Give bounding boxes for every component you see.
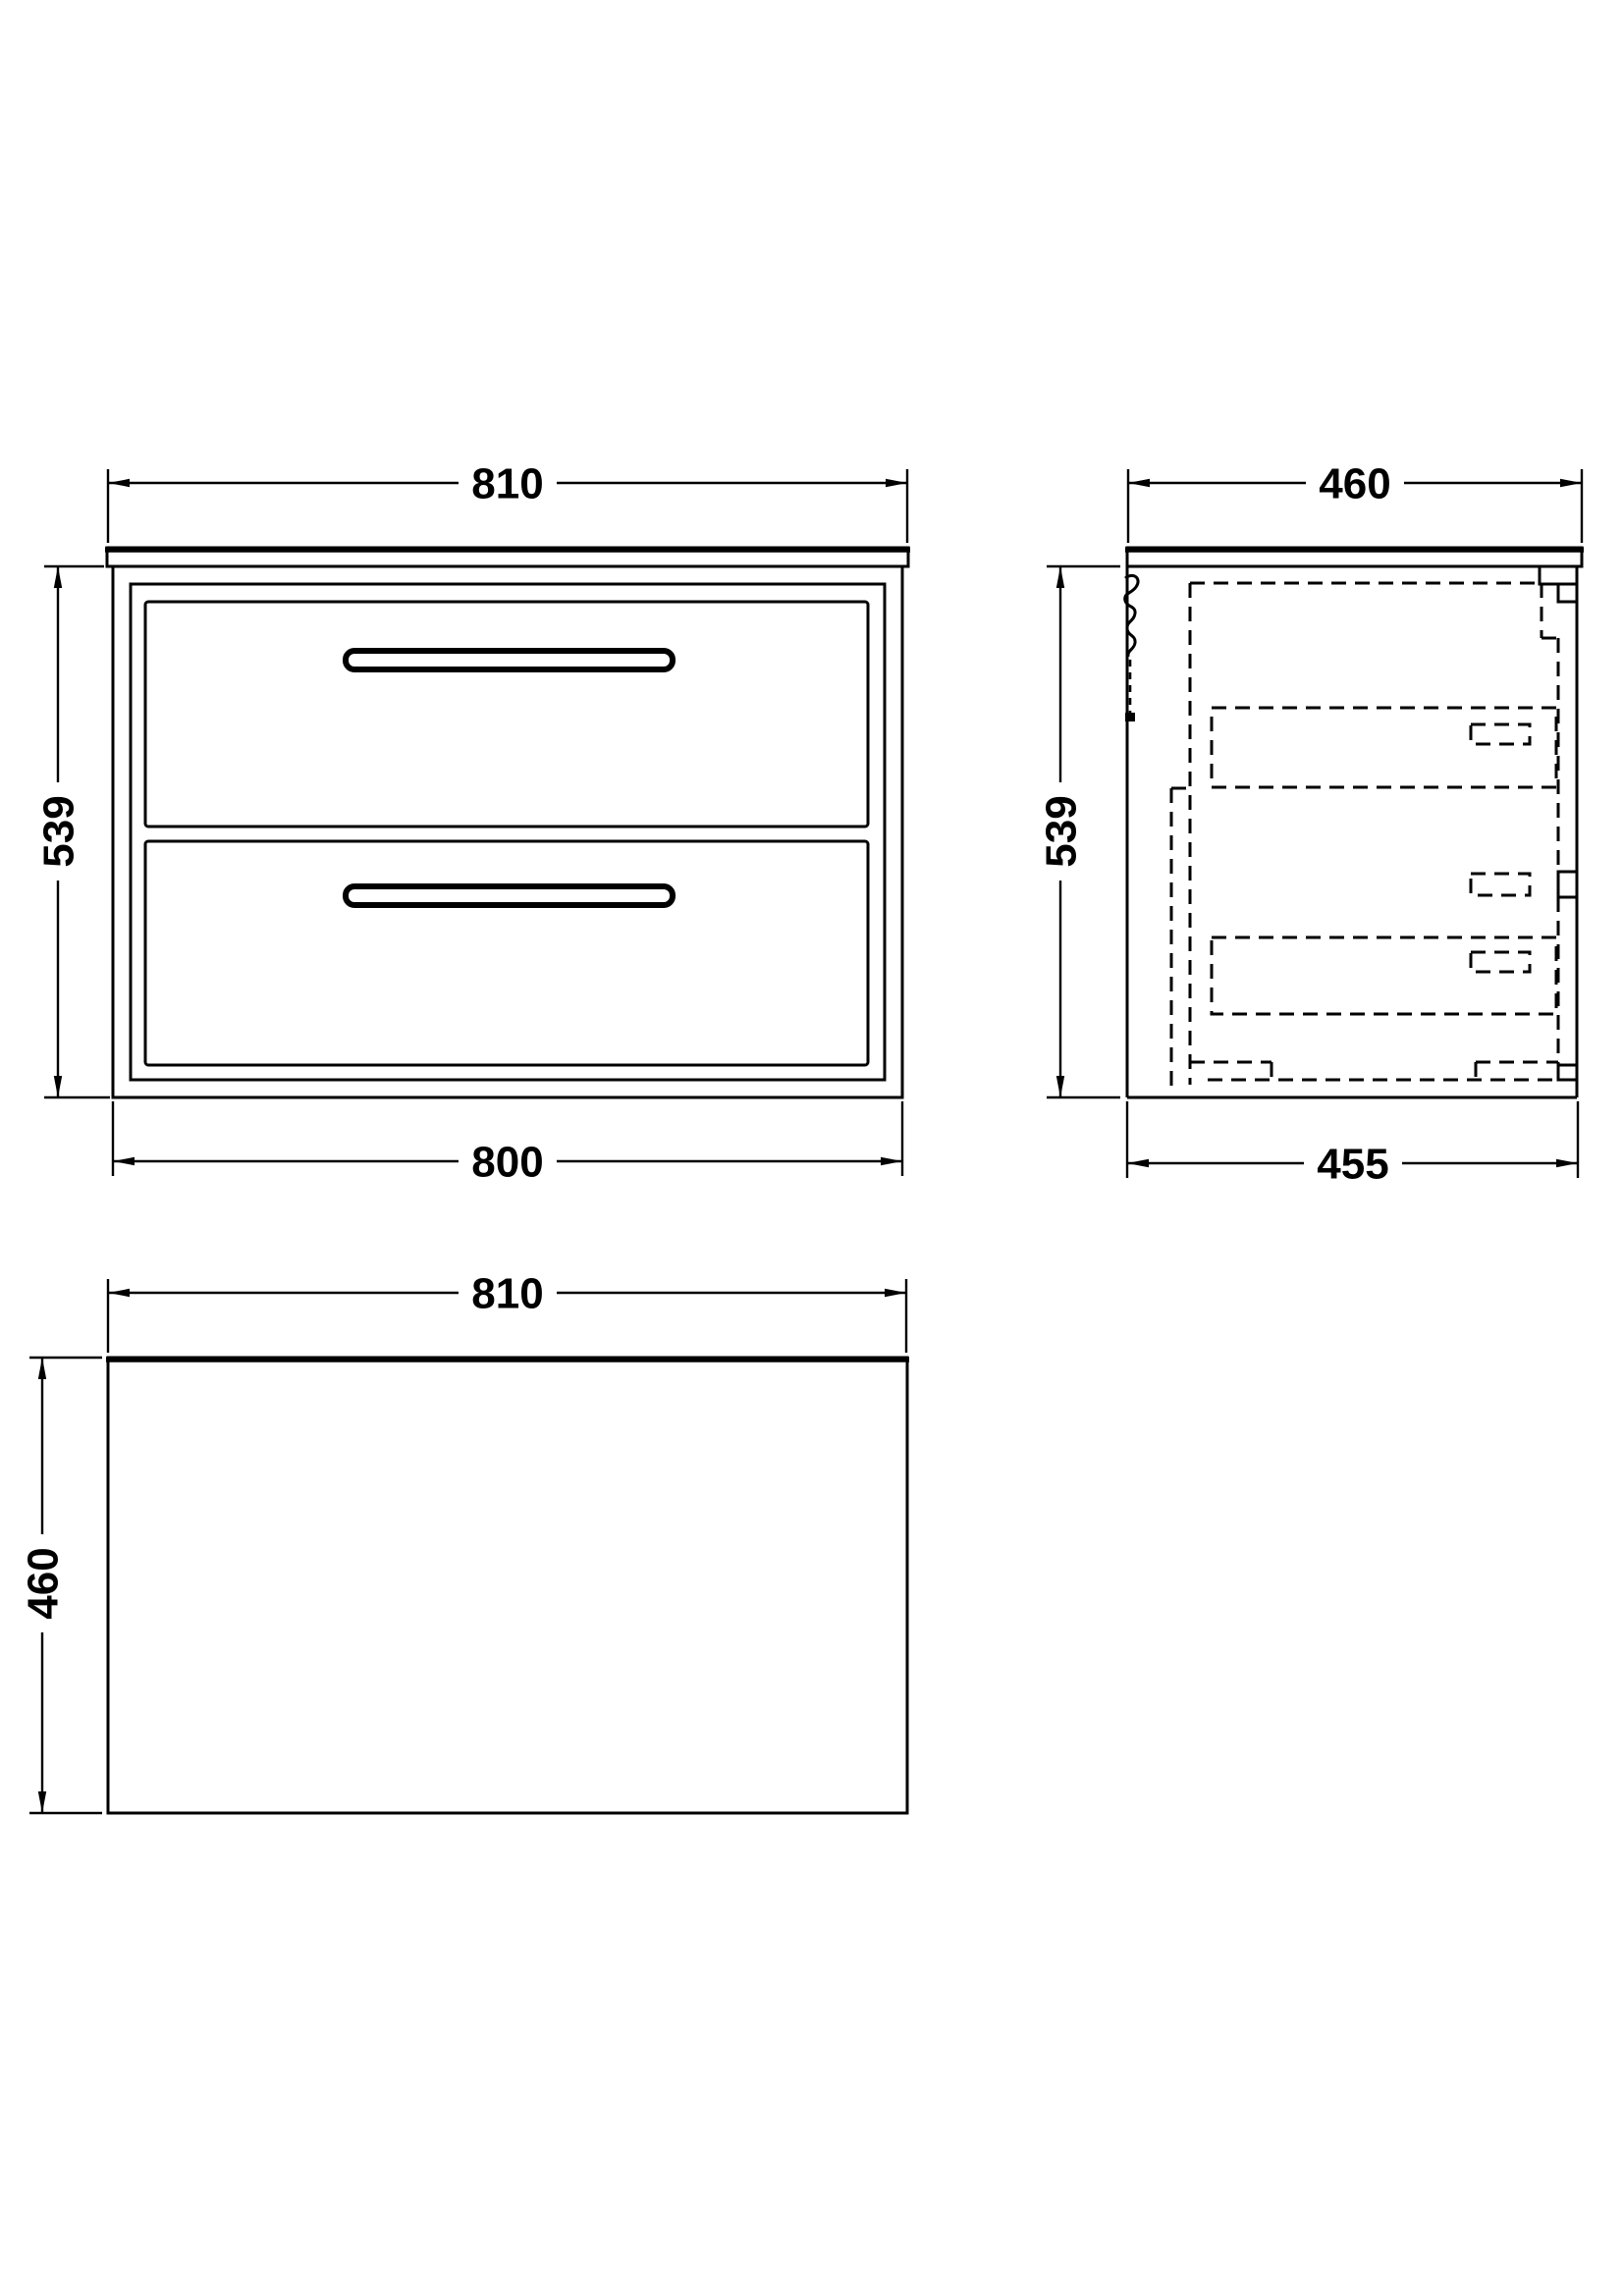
front-view — [105, 548, 910, 1097]
side-view — [1125, 548, 1584, 1097]
side-frame-mid-rail-section — [1558, 872, 1577, 897]
dim-value: 539 — [34, 795, 82, 867]
side-frame-bottom-rail-section — [1558, 1065, 1577, 1080]
side-hidden-runner-1 — [1471, 724, 1530, 744]
dim-value: 460 — [1319, 459, 1390, 507]
dim-plan-width: 810 — [108, 1269, 906, 1353]
side-frame-top-rail-section — [1558, 584, 1577, 602]
side-hidden-runner-2 — [1471, 952, 1530, 972]
front-drawer-1-handle — [346, 651, 673, 669]
front-drawer-1 — [145, 602, 868, 827]
dim-side-height: 539 — [1037, 566, 1120, 1097]
plan-view — [106, 1358, 909, 1813]
drawing-sheet: 810 539 800 — [0, 0, 1623, 2296]
vanity-technical-drawing: 810 539 800 — [0, 0, 1623, 2296]
side-hidden-carcass — [1171, 583, 1558, 1095]
dim-side-depth-bottom: 455 — [1127, 1101, 1578, 1188]
bracket-foot — [1125, 713, 1135, 721]
dim-value: 539 — [1037, 795, 1085, 867]
dim-value: 810 — [471, 1269, 543, 1317]
side-hidden-drawer-box-1 — [1212, 708, 1556, 787]
dim-value: 810 — [471, 459, 543, 507]
plan-outline — [108, 1358, 907, 1813]
side-frame-top-rail-section — [1540, 566, 1577, 584]
front-drawer-2 — [145, 841, 868, 1065]
dim-value: 460 — [19, 1547, 67, 1619]
side-body-outline — [1127, 566, 1577, 1097]
dim-value: 455 — [1317, 1140, 1388, 1188]
dim-front-height: 539 — [34, 566, 110, 1097]
dim-front-width-bottom: 800 — [113, 1101, 902, 1186]
side-hidden-runner-mid — [1471, 874, 1530, 895]
dim-plan-depth: 460 — [19, 1358, 102, 1813]
front-drawer-2-handle — [346, 886, 673, 905]
dim-value: 800 — [471, 1138, 543, 1186]
dim-front-width-top: 810 — [108, 459, 907, 543]
dim-side-depth-top: 460 — [1128, 459, 1582, 543]
side-hidden-drawer-box-2 — [1212, 937, 1556, 1014]
